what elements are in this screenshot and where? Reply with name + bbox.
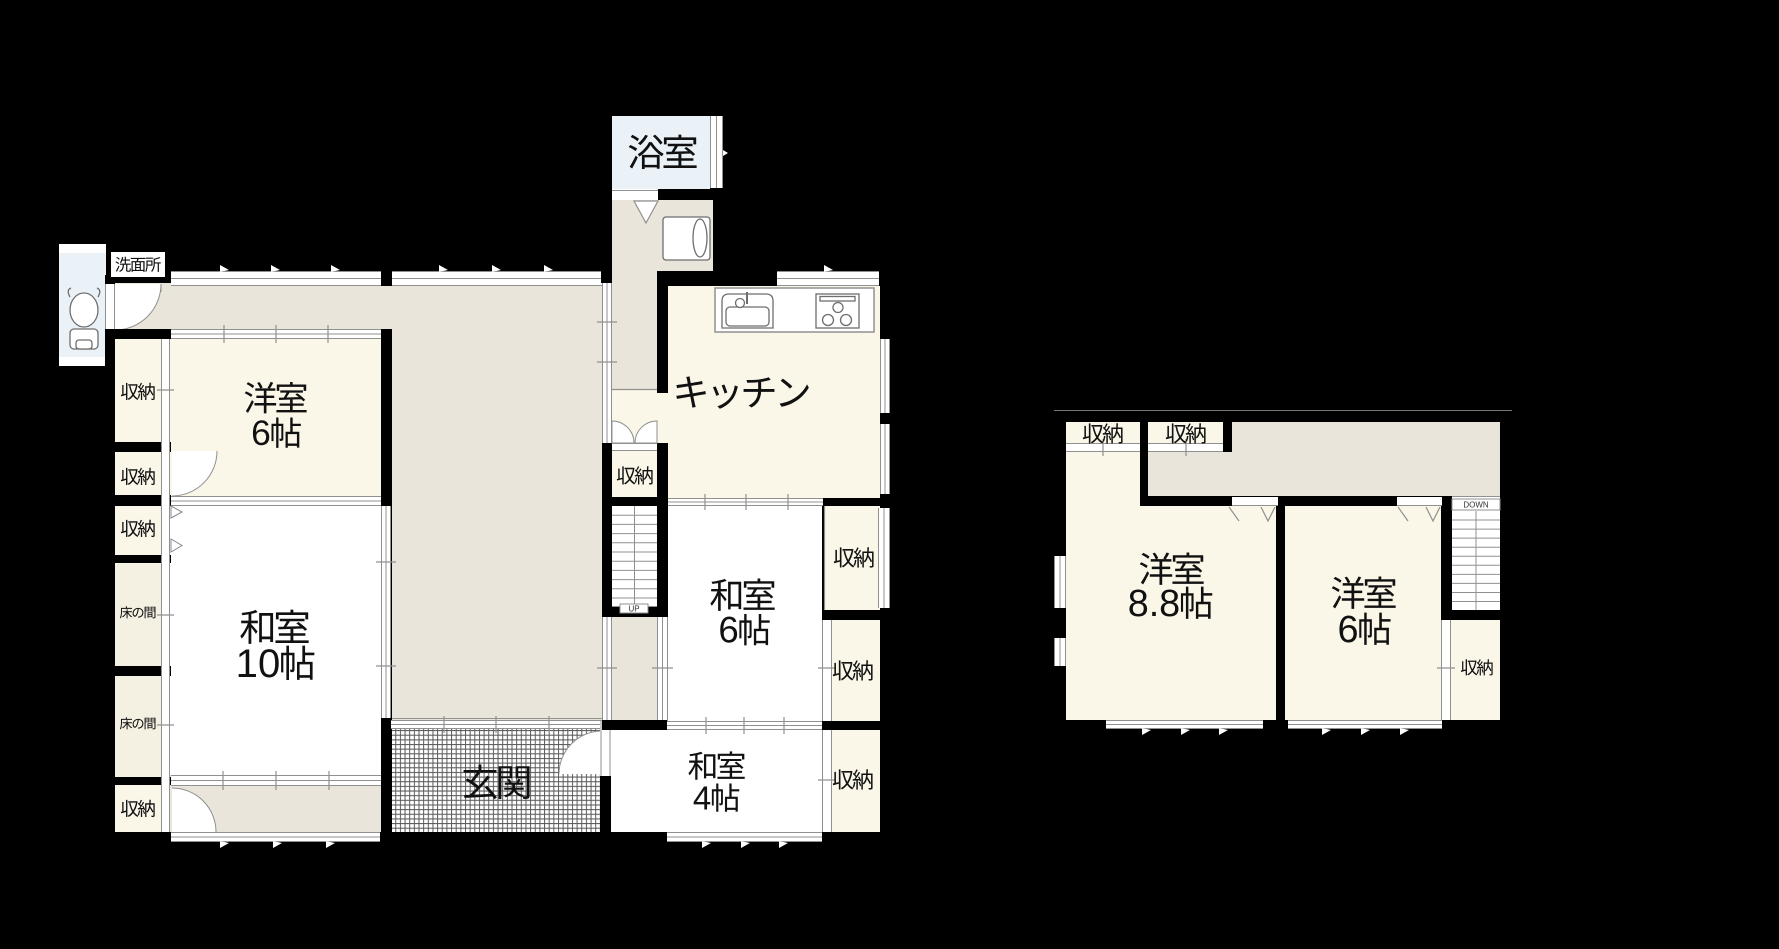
svg-text:0: 0	[258, 642, 280, 686]
svg-text:6: 6	[251, 413, 271, 453]
svg-text:6: 6	[1337, 609, 1358, 651]
svg-text:8: 8	[1128, 583, 1149, 625]
svg-text:1: 1	[236, 642, 258, 686]
svg-text:8: 8	[1159, 583, 1180, 625]
svg-text:UP: UP	[628, 605, 639, 614]
svg-text:4: 4	[693, 779, 711, 816]
svg-text:DOWN: DOWN	[1463, 501, 1489, 510]
svg-text:.: .	[1149, 583, 1160, 625]
svg-text:6: 6	[718, 610, 738, 651]
